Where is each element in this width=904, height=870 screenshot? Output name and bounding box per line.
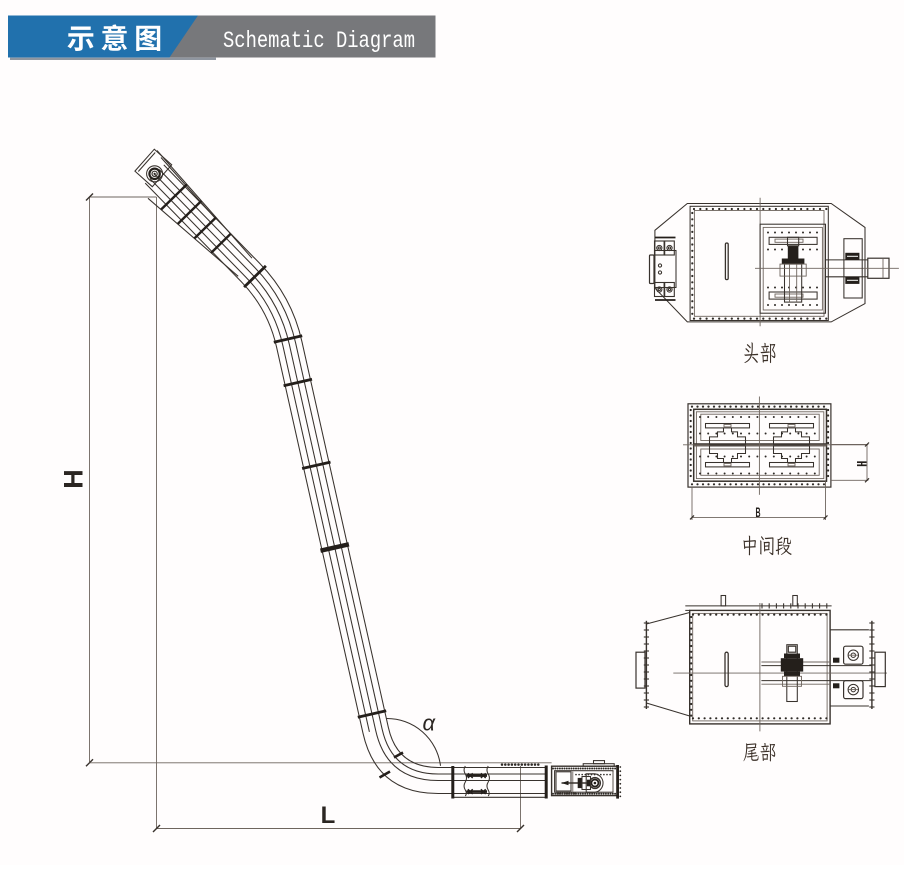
svg-text:Schematic Diagram: Schematic Diagram	[223, 28, 415, 54]
svg-text:B: B	[755, 506, 760, 521]
svg-text:H: H	[59, 469, 89, 489]
svg-text:α: α	[423, 711, 437, 736]
svg-text:L: L	[321, 802, 336, 829]
